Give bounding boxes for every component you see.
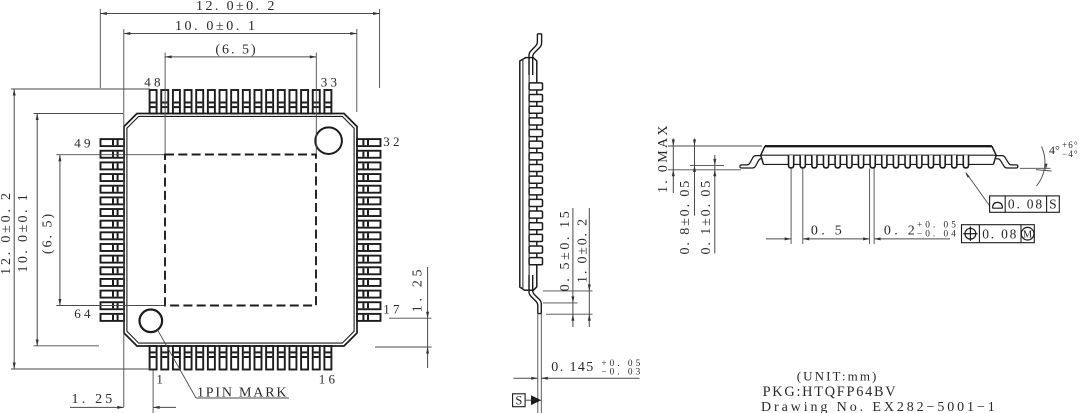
svg-text:−4°: −4° <box>1062 149 1079 159</box>
svg-text:0. 145: 0. 145 <box>551 360 594 375</box>
svg-text:(6. 5): (6. 5) <box>215 43 257 58</box>
svg-text:32: 32 <box>383 134 402 149</box>
svg-text:48: 48 <box>144 75 163 90</box>
svg-text:1: 1 <box>156 372 163 387</box>
svg-text:−0. 04: −0. 04 <box>917 229 959 239</box>
svg-text:12. 0±0. 2: 12. 0±0. 2 <box>196 0 277 14</box>
svg-text:S: S <box>515 394 522 408</box>
svg-text:10. 0±0. 1: 10. 0±0. 1 <box>16 192 31 273</box>
svg-text:16: 16 <box>319 372 338 387</box>
svg-text:1. 0MAX: 1. 0MAX <box>656 123 671 193</box>
svg-text:−0. 03: −0. 03 <box>601 367 643 377</box>
svg-text:1. 25: 1. 25 <box>72 392 116 407</box>
svg-text:1. 25: 1. 25 <box>410 266 425 313</box>
svg-text:0. 8±0. 05: 0. 8±0. 05 <box>678 179 693 255</box>
svg-text:0. 5±0. 15: 0. 5±0. 15 <box>558 209 573 292</box>
svg-text:49: 49 <box>74 136 93 151</box>
svg-text:0. 1±0. 05: 0. 1±0. 05 <box>699 179 714 255</box>
svg-text:10. 0±0. 1: 10. 0±0. 1 <box>175 19 258 34</box>
svg-text:33: 33 <box>321 75 340 90</box>
svg-text:12. 0±0. 2: 12. 0±0. 2 <box>0 190 14 275</box>
svg-text:0. 08: 0. 08 <box>982 226 1018 241</box>
svg-text:PKG:HTQFP64BV: PKG:HTQFP64BV <box>763 384 898 400</box>
svg-text:(6. 5): (6. 5) <box>40 212 55 254</box>
svg-text:1PIN MARK: 1PIN MARK <box>197 385 288 400</box>
svg-text:4°: 4° <box>1049 143 1060 157</box>
svg-text:M: M <box>1023 229 1033 240</box>
svg-text:64: 64 <box>74 306 93 321</box>
svg-text:S: S <box>1049 197 1057 212</box>
svg-text:0. 08: 0. 08 <box>1008 197 1044 212</box>
svg-text:Drawing No. EX282−5001−1: Drawing No. EX282−5001−1 <box>761 400 998 413</box>
svg-text:0. 5: 0. 5 <box>811 224 845 239</box>
svg-text:(UNIT:mm): (UNIT:mm) <box>797 369 879 384</box>
svg-text:17: 17 <box>383 302 402 317</box>
svg-text:0. 2: 0. 2 <box>884 224 918 239</box>
svg-text:1. 0±0. 2: 1. 0±0. 2 <box>576 217 591 283</box>
